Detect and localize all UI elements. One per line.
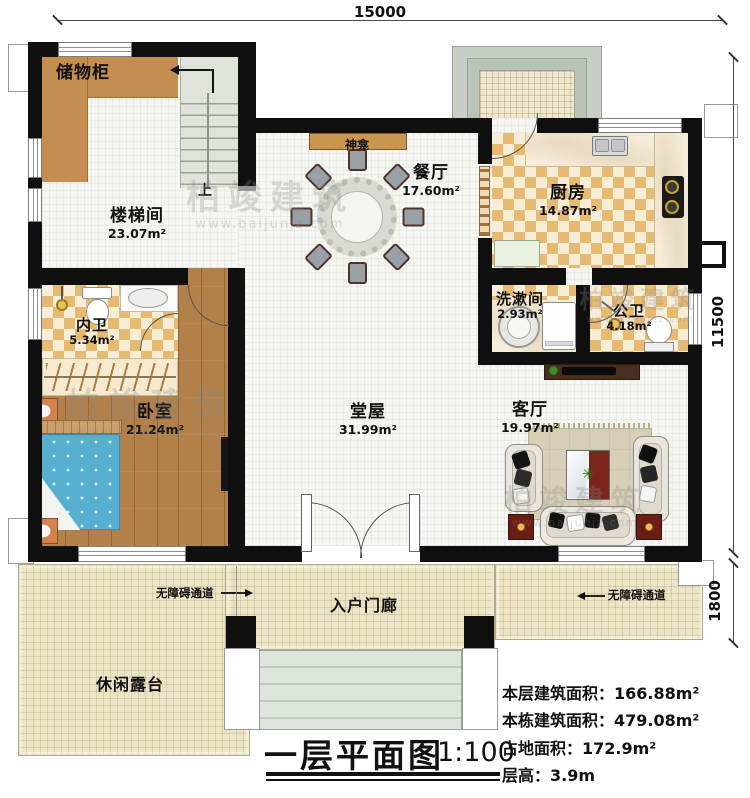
sofa-pillow <box>512 487 530 505</box>
wall <box>132 42 245 57</box>
table-plant: ✳ <box>580 466 596 482</box>
toilet-tank <box>82 287 112 299</box>
stair-direction-line <box>212 69 214 93</box>
room-label-washroom: 洗漱间 2.93m² <box>470 290 570 322</box>
pendant-cord <box>61 286 63 300</box>
room-label-public-bath: 公卫 4.18m² <box>579 302 679 334</box>
window <box>688 293 702 345</box>
dim-1800-label: 1800 <box>706 573 724 629</box>
stat-floor-height: 层高：3.9m <box>502 762 595 786</box>
sofa-pillow <box>548 512 566 530</box>
stat-value: 3.9m <box>550 766 595 785</box>
wall <box>688 345 702 562</box>
sofa-pillow <box>566 514 585 532</box>
room-area: 19.97m² <box>480 420 580 435</box>
wall <box>28 268 188 285</box>
stair-wall-cap <box>238 186 256 191</box>
stat-floor-area: 本层建筑面积：166.88m² <box>502 680 699 704</box>
cabinet-plant <box>549 366 558 375</box>
room-label-shrine: 神龛 <box>317 134 397 153</box>
room-name: 神龛 <box>345 138 369 152</box>
room-label-hall: 堂屋 31.99m² <box>318 402 418 437</box>
wall <box>592 268 702 285</box>
stat-building-area: 本栋建筑面积：479.08m² <box>502 707 699 731</box>
accessible-path-label: 无障碍通道 <box>156 585 214 601</box>
window <box>28 288 42 340</box>
wall <box>28 340 42 562</box>
dining-table <box>331 191 383 243</box>
room-label-kitchen: 厨房 14.87m² <box>518 183 618 218</box>
room-name: 休闲露台 <box>60 675 200 694</box>
dim-top-label: 15000 <box>340 3 420 21</box>
wall <box>28 178 42 188</box>
leisure-terrace <box>18 564 250 756</box>
room-label-dining: 餐厅 17.60m² <box>381 163 481 198</box>
room-area: 23.07m² <box>87 226 187 241</box>
room-name: 入户门廊 <box>294 596 434 615</box>
window <box>558 546 645 562</box>
wall <box>478 118 492 164</box>
room-area: 4.18m² <box>579 320 679 334</box>
toilet-tank <box>644 342 674 352</box>
sofa-pillow <box>639 485 658 504</box>
dim-right-label: 11500 <box>709 294 727 350</box>
room-area: 2.93m² <box>470 308 570 322</box>
room-name: 楼梯间 <box>87 206 187 226</box>
accessible-path-label: 无障碍通道 <box>608 587 666 603</box>
wall <box>245 118 492 133</box>
stat-label: 占地面积： <box>502 739 582 758</box>
floor-plan: 15000 11500 1800 上 <box>0 0 750 798</box>
room-area: 17.60m² <box>381 183 481 198</box>
room-label-porch: 入户门廊 <box>294 596 434 615</box>
wall <box>228 268 245 562</box>
wardrobe-rail <box>44 376 176 378</box>
wall <box>645 546 702 562</box>
room-label-stairwell: 楼梯间 23.07m² <box>87 206 187 241</box>
pendant-lamp <box>56 299 68 311</box>
kitchen-sink-basin <box>611 139 625 152</box>
stove-burner <box>665 180 679 194</box>
washing-machine-panel <box>545 341 573 346</box>
tv <box>562 367 616 375</box>
window <box>78 546 186 562</box>
room-name: 洗漱间 <box>470 290 570 308</box>
stair-up-label: 上 <box>198 180 212 200</box>
wall <box>537 118 598 133</box>
room-label-living: 客厅 19.97m² <box>480 400 580 435</box>
room-area: 21.24m² <box>105 422 205 437</box>
stair-rail <box>207 93 209 188</box>
stair-treads <box>180 93 238 188</box>
wall <box>420 546 558 562</box>
wall <box>186 546 302 562</box>
dim-line-right <box>733 57 734 553</box>
wall <box>478 238 492 268</box>
wall <box>28 546 78 562</box>
window <box>28 188 42 222</box>
stat-value: 166.88m² <box>614 684 699 703</box>
room-name: 卧室 <box>105 402 205 422</box>
accessible-path-line <box>221 592 245 594</box>
accessible-path-guide <box>236 566 237 616</box>
room-area: 5.34m² <box>42 334 142 348</box>
kitchen-counter <box>526 133 654 167</box>
room-name: 餐厅 <box>381 163 481 183</box>
chimney <box>698 241 726 268</box>
stat-value: 479.08m² <box>614 711 699 730</box>
porch-column <box>226 616 256 648</box>
wall <box>478 268 566 285</box>
room-area: 14.87m² <box>518 203 618 218</box>
wall <box>238 42 256 190</box>
accessible-path-arrow <box>245 589 253 597</box>
title-underline <box>266 779 500 781</box>
sofa-pillow <box>584 512 600 528</box>
room-name: 客厅 <box>480 400 580 420</box>
window <box>58 42 132 57</box>
entry-door-panel <box>301 494 312 552</box>
title-underline <box>266 772 500 776</box>
room-name: 堂屋 <box>318 402 418 422</box>
sofa-pillow <box>640 465 659 484</box>
room-name: 储物柜 <box>33 63 133 83</box>
dining-chair <box>403 208 425 227</box>
dining-chair <box>291 208 313 227</box>
side-table <box>508 514 534 540</box>
entry-steps <box>258 650 462 730</box>
stove-burner <box>665 200 679 214</box>
room-name: 公卫 <box>579 302 679 320</box>
accessible-path-arrow <box>577 592 585 600</box>
dim-line-1800 <box>733 563 734 643</box>
room-label-inner-bath: 内卫 5.34m² <box>42 316 142 348</box>
stair-direction-line <box>178 69 214 71</box>
porch-column-base <box>224 648 260 730</box>
wall <box>28 42 42 138</box>
entry-door-panel <box>409 494 420 552</box>
bath-sink-oval <box>128 288 168 308</box>
plan-title: 一层平面图 <box>264 729 444 777</box>
accessible-path-slab <box>495 564 703 640</box>
window <box>598 118 682 133</box>
kitchen-sink-basin <box>595 139 609 152</box>
stat-value: 172.9m² <box>582 739 656 758</box>
porch-column <box>464 616 494 648</box>
stat-label: 本层建筑面积： <box>502 684 614 703</box>
room-label-terrace: 休闲露台 <box>60 675 200 694</box>
stat-label: 层高： <box>502 766 550 785</box>
dining-chair <box>348 262 367 284</box>
kitchen-appliance <box>494 240 540 267</box>
window <box>28 138 42 178</box>
stair-direction-arrow <box>170 65 179 75</box>
porch-column-base <box>462 648 498 730</box>
room-label-storage: 储物柜 <box>33 63 133 83</box>
room-name: 厨房 <box>518 183 618 203</box>
accessible-path-line <box>585 595 605 597</box>
room-label-bedroom: 卧室 21.24m² <box>105 402 205 437</box>
stat-footprint-area: 占地面积：172.9m² <box>502 735 656 759</box>
room-area: 31.99m² <box>318 422 418 437</box>
room-name: 内卫 <box>42 316 142 334</box>
stat-label: 本栋建筑面积： <box>502 711 614 730</box>
side-table <box>636 514 662 540</box>
